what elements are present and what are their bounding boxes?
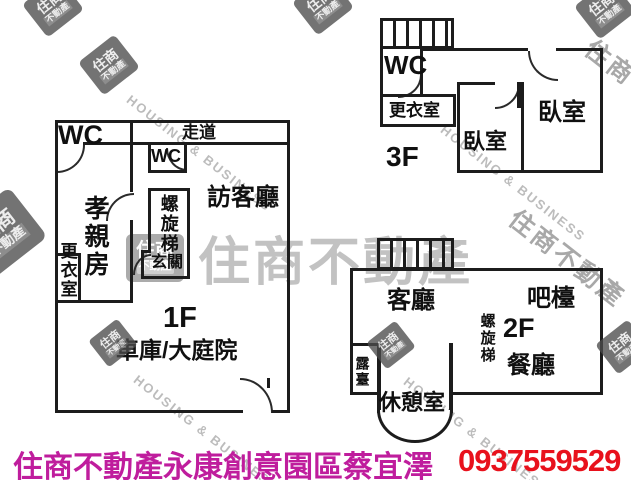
wall bbox=[141, 250, 151, 253]
room-label-foyer: 玄關 bbox=[151, 255, 183, 272]
wall bbox=[457, 82, 460, 173]
room-label-bedroom: 臥室 bbox=[463, 131, 507, 154]
wall bbox=[449, 343, 453, 413]
wall bbox=[380, 46, 383, 97]
wall bbox=[148, 188, 190, 191]
wall bbox=[141, 276, 190, 279]
door-jamb bbox=[267, 378, 270, 388]
brand-seal: 住商不動產 bbox=[574, 0, 631, 40]
phone-number: 0937559529 bbox=[458, 443, 620, 479]
room-label-corridor: 走道 bbox=[182, 124, 216, 142]
wall bbox=[423, 48, 528, 51]
brand-seal: 住商不動產 bbox=[22, 0, 84, 38]
agency-name: 住商不動產永康創意園區蔡宜澤 bbox=[13, 442, 433, 480]
wall bbox=[130, 220, 133, 303]
room-label-lounge: 休憩室 bbox=[379, 392, 445, 415]
brand-seal: 住商不動產 bbox=[78, 34, 140, 95]
door-arc bbox=[106, 193, 134, 221]
wall bbox=[350, 268, 603, 271]
room-label-spiral-stair: 螺旋梯 bbox=[159, 194, 178, 254]
wall bbox=[350, 392, 380, 395]
wall bbox=[457, 170, 603, 173]
wall bbox=[130, 120, 133, 192]
brand-seal: 住商不動產 bbox=[292, 0, 354, 36]
room-label-parent-room: 孝親房 bbox=[82, 195, 108, 279]
wall bbox=[148, 188, 151, 252]
wall bbox=[521, 82, 524, 173]
wall bbox=[55, 410, 243, 413]
wall bbox=[600, 268, 603, 395]
wall bbox=[187, 188, 190, 278]
wall bbox=[556, 48, 603, 51]
wall bbox=[380, 94, 383, 127]
wall bbox=[457, 82, 495, 85]
wall bbox=[141, 250, 144, 279]
room-label-dressing: 更衣室 bbox=[389, 102, 440, 120]
wall bbox=[184, 142, 187, 172]
floor-label-2f: 2F bbox=[503, 314, 535, 342]
room-label-dining: 餐廳 bbox=[507, 354, 555, 379]
room-label-terrace: 露臺 bbox=[355, 356, 370, 388]
floorplan-image: HOUSING & BUSINESS HOUSING & BUSINESS HO… bbox=[0, 0, 631, 480]
room-label-wc: WC bbox=[384, 52, 427, 79]
room-label-living: 客廳 bbox=[387, 289, 435, 314]
floor-label-1f: 1F bbox=[163, 303, 197, 333]
staircase-hatch bbox=[380, 18, 454, 49]
room-label-wc-small: WC bbox=[151, 147, 181, 166]
room-label-wc: WC bbox=[58, 121, 103, 149]
room-label-bar: 吧檯 bbox=[527, 287, 575, 312]
wall bbox=[452, 392, 603, 395]
wall bbox=[276, 410, 290, 413]
wall bbox=[380, 124, 456, 127]
wall bbox=[380, 94, 456, 97]
floor-label-3f: 3F bbox=[386, 142, 419, 171]
wall bbox=[148, 170, 187, 173]
wall bbox=[350, 268, 353, 395]
room-label-visitor-room: 訪客廳 bbox=[207, 186, 279, 211]
wall bbox=[55, 300, 133, 303]
door-arc bbox=[528, 51, 558, 81]
brand-seal: 住商不動產 bbox=[366, 320, 416, 369]
room-label-spiral-stair: 螺旋梯 bbox=[479, 313, 495, 364]
room-label-dressing: 更衣室 bbox=[58, 242, 76, 299]
brand-seal: 住商不動產 bbox=[0, 187, 48, 279]
wall bbox=[453, 94, 456, 127]
staircase-hatch bbox=[377, 238, 454, 270]
wall bbox=[287, 120, 290, 413]
wall bbox=[600, 48, 603, 173]
room-label-bedroom: 臥室 bbox=[538, 101, 586, 126]
